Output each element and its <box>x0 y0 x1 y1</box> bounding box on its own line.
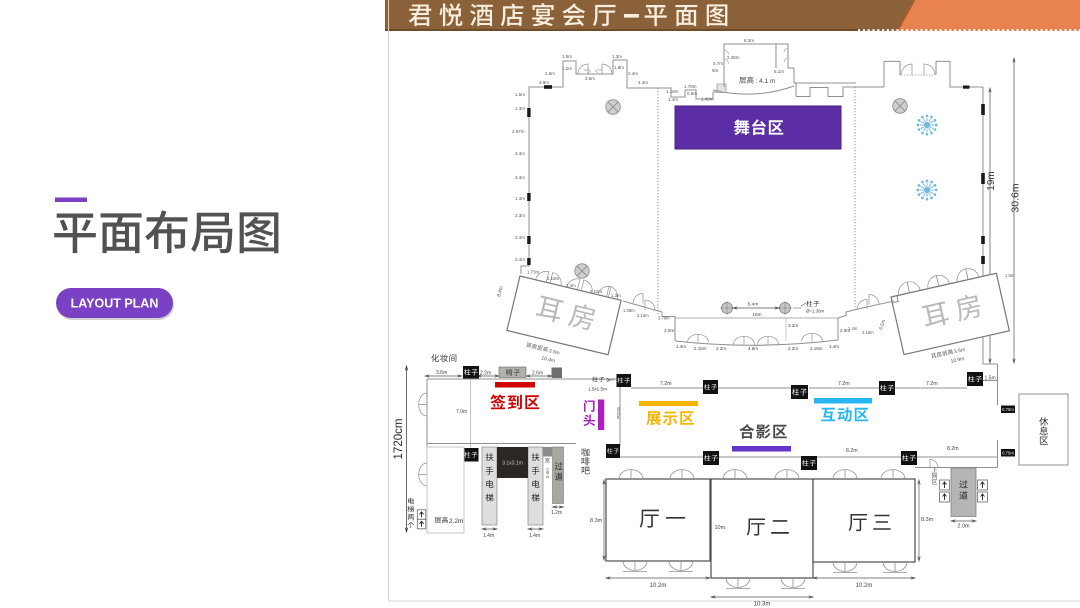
svg-text:1.73m: 1.73m <box>527 270 540 275</box>
svg-text:1.18m: 1.18m <box>666 89 679 94</box>
svg-text:2.4m: 2.4m <box>515 235 525 240</box>
svg-text:10.9m: 10.9m <box>950 356 965 365</box>
svg-text:1.48m: 1.48m <box>701 97 714 102</box>
svg-text:1.5x1.5m: 1.5x1.5m <box>588 387 607 392</box>
svg-text:1.2m: 1.2m <box>562 66 572 71</box>
svg-text:2.4m: 2.4m <box>515 151 525 156</box>
svg-text:2.4m: 2.4m <box>628 71 638 76</box>
svg-text:1.3m: 1.3m <box>515 106 525 111</box>
svg-text:1.8m: 1.8m <box>614 65 624 70</box>
svg-text:8.2m: 8.2m <box>947 446 959 452</box>
svg-text:10.2m: 10.2m <box>856 583 873 589</box>
svg-text:10.4m: 10.4m <box>541 355 556 364</box>
svg-text:2.15m: 2.15m <box>547 276 560 281</box>
svg-text:2.2m: 2.2m <box>716 346 726 351</box>
svg-text:6.5m: 6.5m <box>878 319 886 330</box>
svg-text:7.2m: 7.2m <box>660 381 672 387</box>
svg-text:3.6m: 3.6m <box>436 370 447 376</box>
svg-text:8.3m: 8.3m <box>921 517 934 523</box>
svg-text:5m: 5m <box>712 68 719 73</box>
svg-text:3.5m: 3.5m <box>548 348 560 356</box>
svg-text:1.4m: 1.4m <box>676 344 686 349</box>
svg-text:30.6m: 30.6m <box>1010 183 1022 212</box>
svg-text:3.0m: 3.0m <box>664 328 674 333</box>
svg-text:3.1x3.1m: 3.1x3.1m <box>502 461 523 467</box>
svg-text:8.2m: 8.2m <box>846 448 858 454</box>
svg-text:0.75m: 0.75m <box>1002 407 1014 412</box>
svg-text:: 4.1 m: : 4.1 m <box>756 78 776 85</box>
svg-text:3.2m: 3.2m <box>788 323 798 328</box>
svg-text:8.3m: 8.3m <box>590 518 603 524</box>
svg-text:2.4m: 2.4m <box>515 175 525 180</box>
svg-text:2.46m: 2.46m <box>727 55 740 60</box>
svg-text:10m: 10m <box>715 525 726 531</box>
svg-text:1.5m: 1.5m <box>562 54 572 59</box>
svg-text:2.15m: 2.15m <box>862 330 874 335</box>
svg-text:1.4m: 1.4m <box>529 533 540 539</box>
svg-text:1.4m: 1.4m <box>848 326 858 331</box>
svg-text:Ø=1.36m: Ø=1.36m <box>806 309 825 314</box>
svg-text:3.9m: 3.9m <box>539 80 549 85</box>
svg-text:0.7m: 0.7m <box>713 61 723 66</box>
svg-text:3.6m: 3.6m <box>585 76 595 81</box>
svg-text:2.15m: 2.15m <box>694 346 707 351</box>
svg-text:2.0m: 2.0m <box>957 524 970 530</box>
svg-text:0.9m: 0.9m <box>545 468 550 478</box>
svg-text:1.3m: 1.3m <box>612 54 622 59</box>
svg-text:4.4m: 4.4m <box>638 80 648 85</box>
svg-text:8.4m: 8.4m <box>496 286 505 298</box>
svg-text:1.5m: 1.5m <box>515 92 525 97</box>
svg-text:5.1m: 5.1m <box>774 69 784 74</box>
svg-text:2.4m: 2.4m <box>515 257 525 262</box>
svg-text:7.0m: 7.0m <box>456 409 467 415</box>
svg-text:1.2m: 1.2m <box>551 510 562 516</box>
svg-text:2.15m: 2.15m <box>637 313 649 318</box>
svg-text:2.6m: 2.6m <box>532 371 543 377</box>
svg-text:1.4m: 1.4m <box>829 344 839 349</box>
svg-text:10.3m: 10.3m <box>754 602 771 608</box>
svg-text:7.2m: 7.2m <box>926 381 938 387</box>
svg-text:2.67m: 2.67m <box>512 129 525 134</box>
svg-text:0.9m: 0.9m <box>687 91 697 96</box>
svg-text:2.15m: 2.15m <box>810 346 823 351</box>
svg-text:5.4m: 5.4m <box>748 302 759 308</box>
svg-text:1.08m: 1.08m <box>623 308 635 313</box>
svg-text:7.2m: 7.2m <box>838 381 850 387</box>
svg-text:1.6m: 1.6m <box>1005 273 1015 278</box>
svg-text:3.78m: 3.78m <box>658 316 670 321</box>
svg-text:5932m: 5932m <box>616 407 621 420</box>
svg-text:10.2m: 10.2m <box>650 583 667 589</box>
svg-text:8.3m: 8.3m <box>744 38 754 43</box>
svg-text:2.2m: 2.2m <box>449 518 463 525</box>
svg-text:1720cm: 1720cm <box>393 419 405 460</box>
svg-text:1.4m: 1.4m <box>483 533 494 539</box>
svg-text:3.5m: 3.5m <box>954 347 966 355</box>
svg-text:0.75m: 0.75m <box>1002 451 1014 456</box>
svg-text:19m: 19m <box>986 171 997 190</box>
svg-text:2.2m: 2.2m <box>788 346 798 351</box>
svg-text:2.3m: 2.3m <box>515 213 525 218</box>
svg-text:2.6m: 2.6m <box>545 71 555 76</box>
svg-text:2.15m: 2.15m <box>590 289 603 294</box>
svg-text:1.4m: 1.4m <box>668 97 678 102</box>
svg-text:1.78m: 1.78m <box>684 84 697 89</box>
svg-text:1.3m: 1.3m <box>515 196 525 201</box>
svg-text:2.4m: 2.4m <box>566 283 576 288</box>
svg-text:4.6m: 4.6m <box>748 346 758 351</box>
svg-text:16m: 16m <box>752 312 761 318</box>
svg-text:2.2m: 2.2m <box>480 371 491 377</box>
svg-text:1.5m: 1.5m <box>985 376 996 382</box>
svg-text:1.3m: 1.3m <box>611 293 621 298</box>
svg-text:LAYOUT PLAN: LAYOUT PLAN <box>71 297 159 311</box>
